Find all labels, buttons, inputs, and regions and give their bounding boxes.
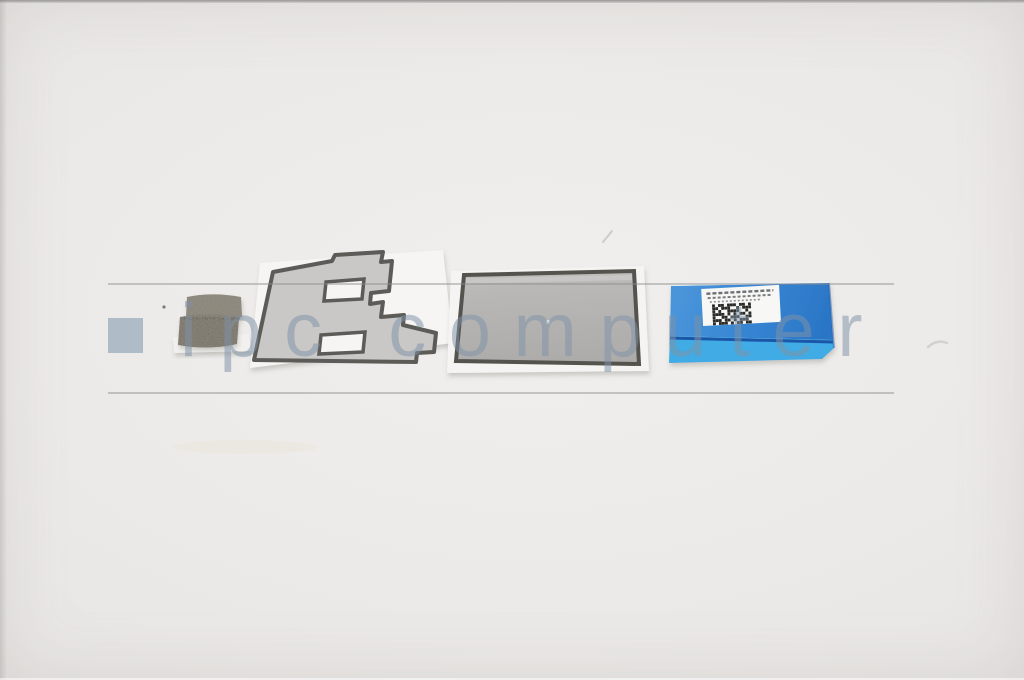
background-smudge bbox=[173, 440, 317, 454]
photo-left-edge bbox=[0, 0, 7, 680]
watermark-rule-bottom bbox=[108, 392, 894, 394]
watermark-rule-top bbox=[108, 283, 894, 285]
surface-mark bbox=[928, 342, 947, 347]
photo-top-edge bbox=[0, 0, 1024, 3]
surface-scratch bbox=[603, 231, 612, 242]
watermark-text: ipc computer bbox=[180, 293, 885, 369]
dust-speck bbox=[162, 305, 165, 308]
watermark-logo-square bbox=[108, 318, 143, 353]
product-photo: ipc computer bbox=[0, 0, 1024, 680]
film-top-highlight bbox=[466, 278, 632, 282]
